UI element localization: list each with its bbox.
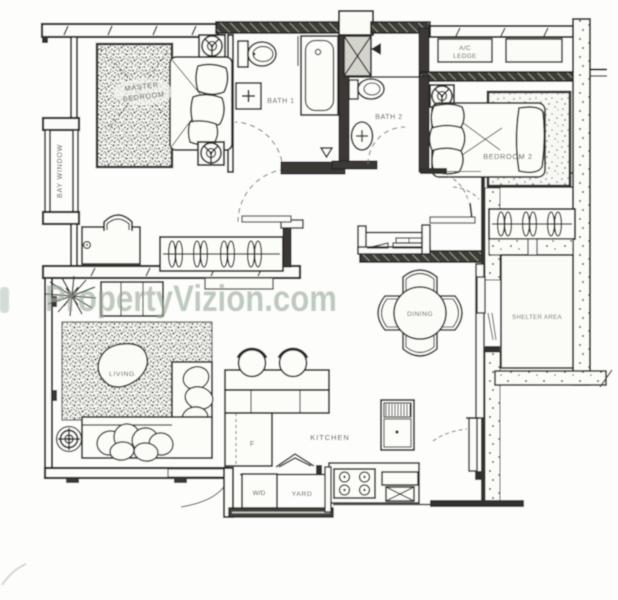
svg-text:BAY WINDOW: BAY WINDOW (57, 144, 64, 198)
svg-text:W/D: W/D (253, 490, 266, 497)
svg-text:BEDROOM 2: BEDROOM 2 (483, 152, 532, 161)
svg-text:A/C: A/C (459, 45, 471, 52)
svg-text:LIVING: LIVING (109, 371, 135, 378)
svg-text:F: F (250, 441, 254, 448)
svg-text:PropertyVizion.com: PropertyVizion.com (45, 278, 337, 319)
svg-text:BATH 1: BATH 1 (267, 98, 295, 105)
svg-text:DINING: DINING (407, 311, 433, 318)
svg-text:YARD: YARD (292, 491, 313, 498)
svg-text:SHELTER AREA: SHELTER AREA (512, 314, 562, 321)
svg-text:BATH 2: BATH 2 (375, 114, 403, 121)
svg-text:LEDGE: LEDGE (453, 53, 477, 60)
svg-text:KITCHEN: KITCHEN (310, 433, 349, 442)
